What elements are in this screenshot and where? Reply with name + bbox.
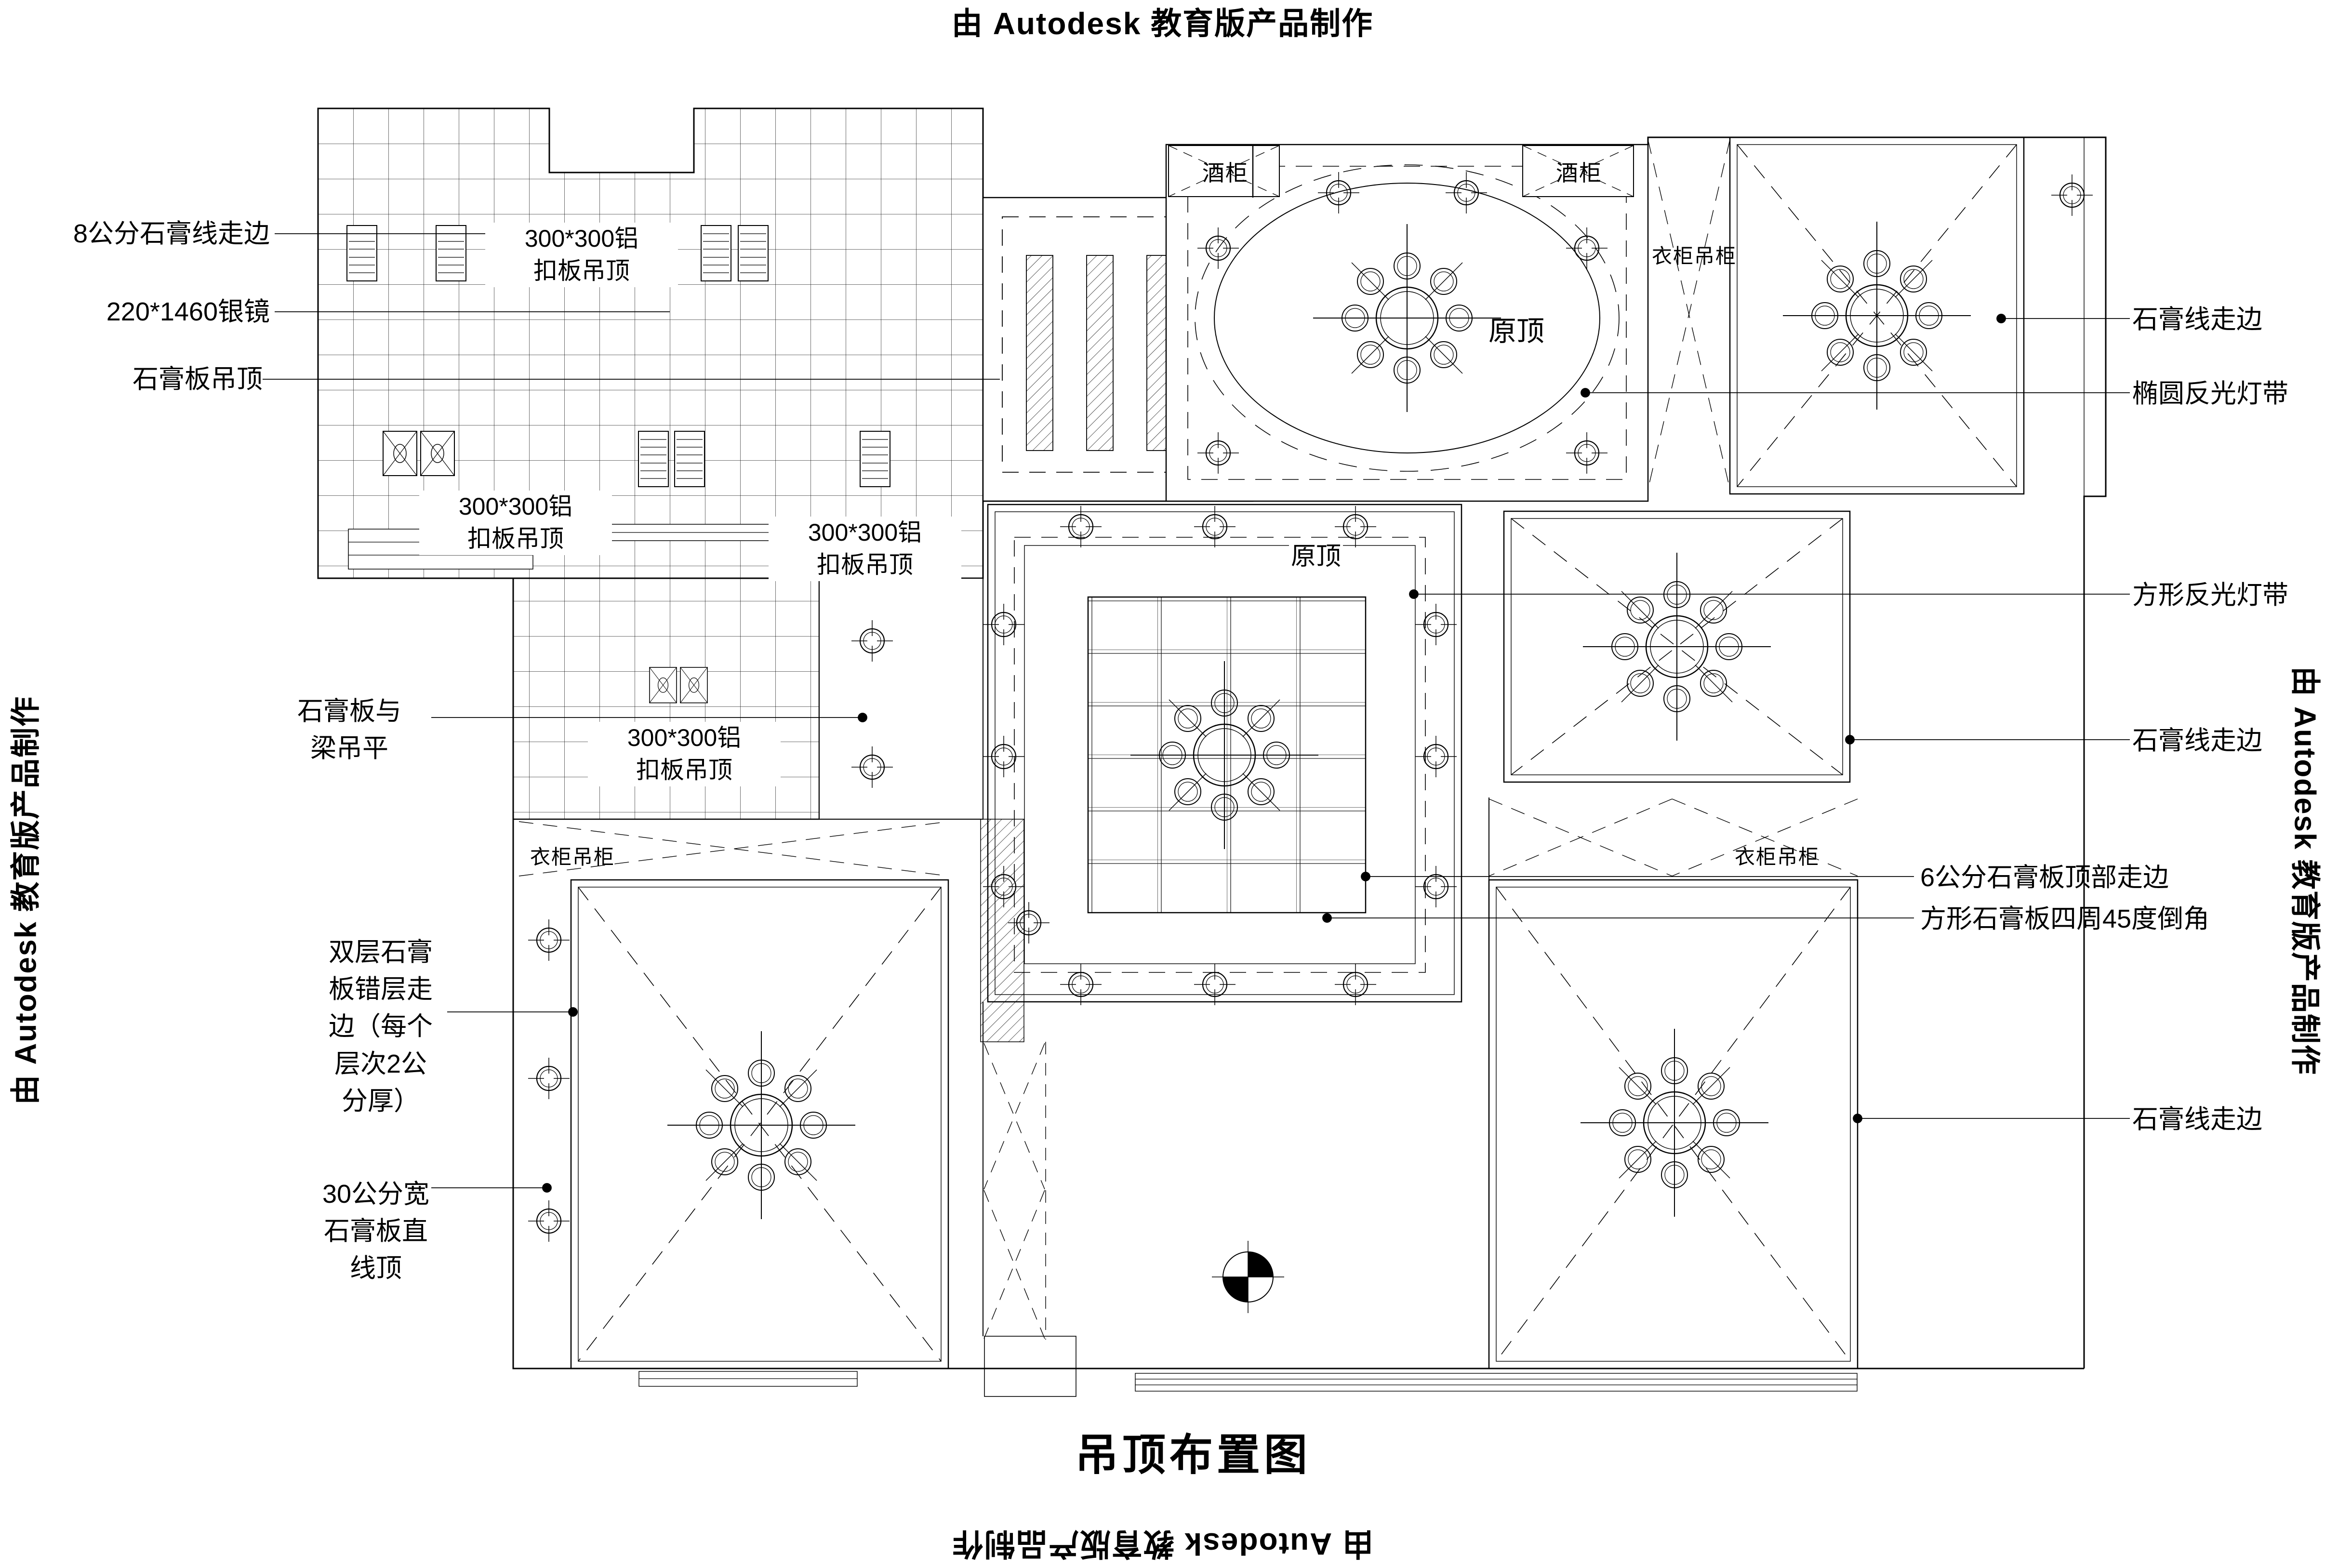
label-aluminum-panel-4: 300*300铝 扣板吊顶 <box>588 722 781 786</box>
edu-banner-left: 由 Autodesk 教育版产品制作 <box>7 599 46 1201</box>
annotation-board-flush-beam: 石膏板与 梁吊平 <box>270 693 429 767</box>
plan-drawing <box>0 0 2325 1568</box>
label-aluminum-panel-1: 300*300铝 扣板吊顶 <box>485 223 678 287</box>
label-wine-cabinet-left: 酒柜 <box>1199 159 1252 188</box>
annotation-gypsum-board-ceiling: 石膏板吊顶 <box>133 362 263 396</box>
room-midleft-strip <box>819 578 983 819</box>
label-aluminum-panel-3: 300*300铝 扣板吊顶 <box>769 517 961 581</box>
annotation-gypsum-line-edge-1: 石膏线走边 <box>2132 303 2262 336</box>
edu-banner-right: 由 Autodesk 教育版产品制作 <box>2285 570 2324 1172</box>
edu-banner-top: 由 Autodesk 教育版产品制作 <box>0 4 2325 44</box>
annotation-6cm-top-edge: 6公分石膏板顶部走边 <box>1920 861 2169 894</box>
datum-symbol <box>1212 1241 1284 1313</box>
label-original-ceiling-dining: 原顶 <box>1289 541 1343 573</box>
label-wardrobe-topright: 衣柜吊柜 <box>1652 243 1737 270</box>
room-living <box>1166 145 1648 501</box>
label-wardrobe-bottomleft: 衣柜吊柜 <box>530 844 615 871</box>
label-aluminum-panel-2: 300*300铝 扣板吊顶 <box>419 491 612 555</box>
annotation-oval-cove-light: 椭圆反光灯带 <box>2132 377 2288 411</box>
annotation-30cm-straight-ceiling: 30公分宽 石膏板直 线顶 <box>304 1176 448 1288</box>
room-dining <box>983 505 1461 1005</box>
label-wine-cabinet-right: 酒柜 <box>1553 159 1606 188</box>
annotation-double-layer-edge: 双层石膏 板错层走 边（每个 层次2公 分厚） <box>308 934 453 1120</box>
annotation-silver-mirror: 220*1460银镜 <box>106 295 270 329</box>
drawing-title: 吊顶布置图 <box>952 1427 1434 1484</box>
annotation-square-cove-light: 方形反光灯带 <box>2132 578 2288 612</box>
label-wardrobe-bottomright: 衣柜吊柜 <box>1735 844 1820 871</box>
label-original-ceiling-living: 原顶 <box>1487 313 1546 349</box>
room-bedroom-bottomleft <box>519 822 948 1369</box>
annotation-45deg-chamfer: 方形石膏板四周45度倒角 <box>1920 902 2209 936</box>
annotation-gypsum-line-8cm: 8公分石膏线走边 <box>73 217 270 251</box>
edu-banner-bottom: 由 Autodesk 教育版产品制作 <box>0 1524 2325 1564</box>
ceiling-plan-canvas: 由 Autodesk 教育版产品制作 由 Autodesk 教育版产品制作 由 … <box>0 0 2325 1568</box>
annotation-gypsum-line-edge-3: 石膏线走边 <box>2132 1103 2262 1136</box>
annotation-gypsum-line-edge-2: 石膏线走边 <box>2132 724 2262 757</box>
room-topleft-grid <box>318 108 983 578</box>
